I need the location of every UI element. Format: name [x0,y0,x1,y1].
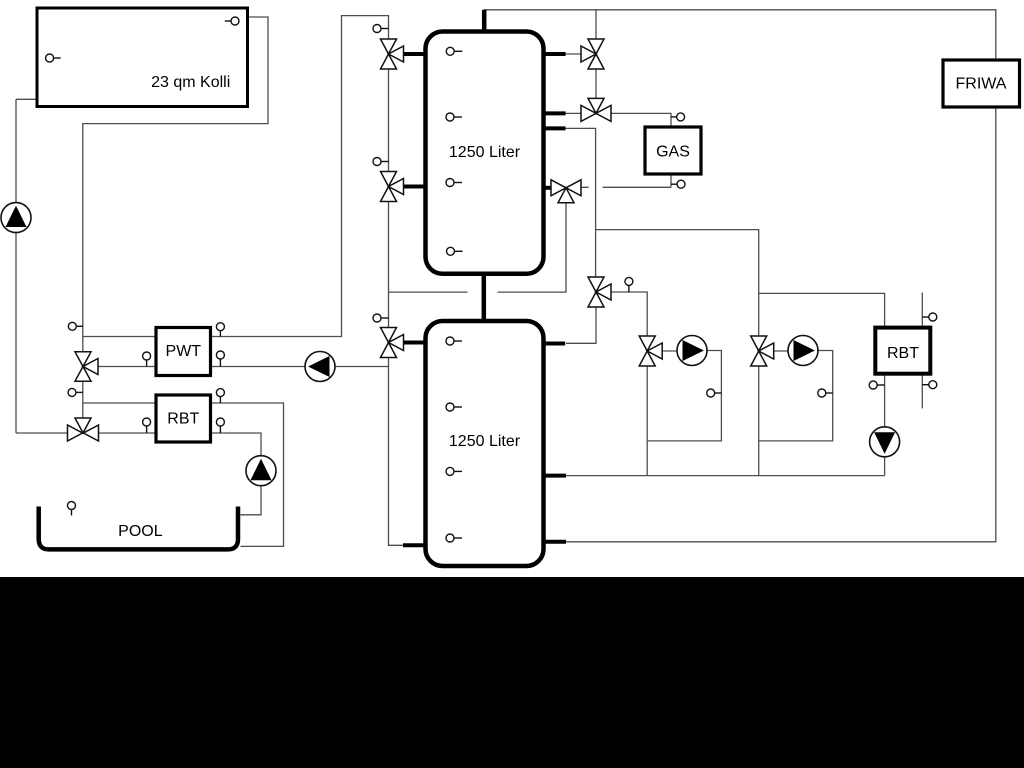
svg-text:FRIWA: FRIWA [956,76,1007,93]
svg-text:1250 Liter: 1250 Liter [449,144,521,161]
svg-text:RBT: RBT [167,411,199,428]
svg-text:1250 Liter: 1250 Liter [449,433,521,450]
svg-text:RBT: RBT [887,345,919,362]
svg-text:PWT: PWT [166,343,202,360]
svg-text:23 qm Kolli: 23 qm Kolli [151,74,230,91]
svg-text:GAS: GAS [656,144,690,161]
svg-text:POOL: POOL [118,523,163,540]
